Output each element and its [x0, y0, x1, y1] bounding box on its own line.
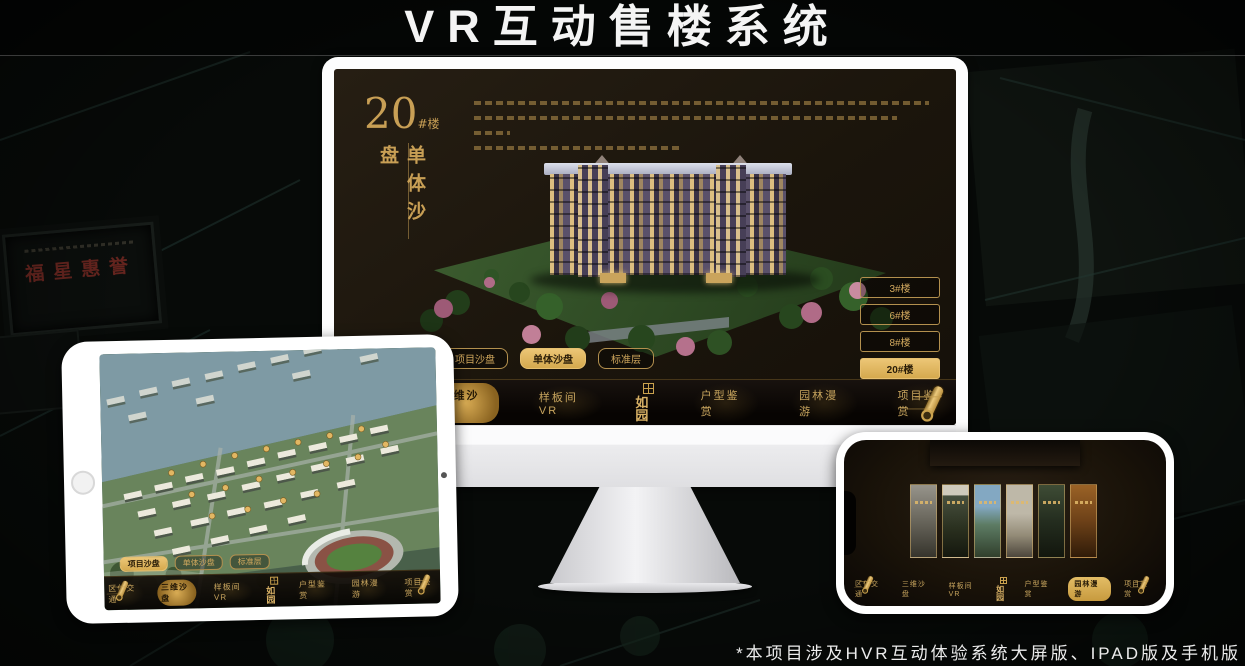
nav-item-unit-plans[interactable]: 户型鉴赏 — [1022, 578, 1059, 600]
ipad-app-screen: 项目沙盘 单体沙盘 标准层 区位交通 三维沙盘 样板间VR 如园 户型鉴赏 园林… — [99, 347, 440, 610]
tab-single-sandbox[interactable]: 单体沙盘 — [520, 348, 586, 369]
entrance-canopy — [706, 273, 732, 283]
monitor-stand — [550, 487, 740, 583]
tab-standard-floor[interactable]: 标准层 — [598, 348, 654, 369]
logo-text: 如园 — [266, 586, 282, 604]
building-tower — [578, 165, 608, 277]
seal-icon — [1000, 577, 1007, 584]
ipad-mockup: 项目沙盘 单体沙盘 标准层 区位交通 三维沙盘 样板间VR 如园 户型鉴赏 园林… — [61, 334, 459, 624]
ipad-camera — [441, 472, 447, 478]
nav-item-garden-tour[interactable]: 园林漫游 — [1068, 577, 1111, 601]
ipad-subtabs: 项目沙盘 单体沙盘 标准层 — [120, 554, 270, 572]
scene-thumb-courtyard[interactable] — [910, 484, 937, 558]
nav-item-garden-tour[interactable]: 园林漫游 — [348, 575, 388, 602]
footnote: *本项目涉及HVR互动体验系统大屏版、IPAD版及手机版 — [736, 639, 1241, 664]
nav-item-showroom-vr[interactable]: 样板间VR — [210, 579, 254, 604]
building-heading: 20#楼 单体沙盘 — [364, 93, 440, 255]
scene-thumb-study[interactable] — [1070, 484, 1097, 558]
phone-mockup: 区位交通 三维沙盘 样板间VR 如园 户型鉴赏 园林漫游 项目鉴赏 — [836, 432, 1174, 614]
stage: 福星惠誉 VR互动售楼系统 20#楼 单体沙盘 — [0, 0, 1245, 666]
nav-item-unit-plans[interactable]: 户型鉴赏 — [693, 383, 759, 423]
interior-door-beam — [930, 440, 1080, 466]
nav-item-garden-tour[interactable]: 园林漫游 — [791, 383, 857, 423]
plaque-title: 福星惠誉 — [7, 249, 155, 289]
logo-text: 如园 — [996, 586, 1011, 602]
seal-icon — [643, 383, 654, 394]
ipad-home-button — [71, 470, 95, 494]
nav-item-3d-sandbox[interactable]: 三维沙盘 — [899, 578, 936, 600]
phone-app-screen: 区位交通 三维沙盘 样板间VR 如园 户型鉴赏 园林漫游 项目鉴赏 — [844, 440, 1166, 606]
entrance-canopy — [600, 273, 626, 283]
building-number-suffix: #楼 — [417, 117, 439, 131]
phone-notch — [844, 491, 856, 555]
building-subtitle: 单体沙盘 — [374, 145, 428, 255]
nav-item-3d-sandbox[interactable]: 三维沙盘 — [157, 579, 197, 606]
heading-divider — [408, 143, 409, 239]
scene-thumb-label — [1011, 501, 1028, 504]
floor-button-3[interactable]: 3#楼 — [860, 277, 940, 298]
floor-button-8[interactable]: 8#楼 — [860, 331, 940, 352]
tab-standard-floor[interactable]: 标准层 — [230, 554, 270, 570]
ruyuan-logo: 如园 — [996, 577, 1011, 602]
tab-project-sandbox[interactable]: 项目沙盘 — [120, 556, 168, 572]
scene-thumb-label — [1075, 501, 1092, 504]
page-title: VR互动售楼系统 — [0, 0, 1245, 56]
scene-thumb-garden[interactable] — [974, 484, 1001, 558]
ruyuan-logo: 如园 — [266, 576, 282, 604]
scroll-menu-icon[interactable] — [1136, 576, 1150, 595]
logo-text: 如园 — [635, 396, 660, 422]
scroll-menu-icon[interactable] — [917, 385, 946, 422]
floor-button-group: 3#楼 6#楼 8#楼 20#楼 — [860, 277, 940, 379]
ruyuan-logo: 如园 — [635, 383, 660, 422]
scene-thumb-interior[interactable] — [942, 484, 969, 558]
scene-thumb-building[interactable] — [1006, 484, 1033, 558]
phone-navbar: 区位交通 三维沙盘 样板间VR 如园 户型鉴赏 园林漫游 项目鉴赏 — [852, 576, 1158, 602]
scroll-menu-icon[interactable] — [415, 574, 432, 595]
floor-button-6[interactable]: 6#楼 — [860, 304, 940, 325]
scroll-menu-icon[interactable] — [860, 576, 874, 595]
scene-thumb-landscape[interactable] — [1038, 484, 1065, 558]
background-plaque: 福星惠誉 — [2, 222, 162, 337]
scene-thumb-label — [1043, 501, 1060, 504]
tab-single-sandbox[interactable]: 单体沙盘 — [175, 555, 223, 571]
scene-thumb-label — [915, 501, 932, 504]
building-number-value: 20 — [364, 89, 417, 138]
description-line — [474, 116, 897, 120]
scene-gallery — [910, 484, 1097, 558]
scene-thumb-label — [947, 501, 964, 504]
sandbox-subtabs: 项目沙盘 单体沙盘 标准层 — [442, 348, 654, 369]
ipad-navbar: 区位交通 三维沙盘 样板间VR 如园 户型鉴赏 园林漫游 项目鉴赏 — [104, 569, 441, 610]
description-line — [474, 101, 929, 105]
nav-item-showroom-vr[interactable]: 样板间VR — [946, 580, 986, 599]
blossom-trees — [484, 277, 495, 288]
description-line — [474, 146, 683, 150]
nav-item-unit-plans[interactable]: 户型鉴赏 — [295, 576, 335, 603]
description-paragraph — [474, 101, 929, 161]
scroll-menu-icon[interactable] — [113, 580, 130, 601]
building-tower — [716, 165, 746, 277]
seal-icon — [270, 576, 278, 584]
building-render[interactable] — [544, 157, 800, 289]
nav-item-showroom-vr[interactable]: 样板间VR — [531, 385, 604, 421]
floor-button-20[interactable]: 20#楼 — [860, 358, 940, 379]
building-number: 20#楼 — [364, 93, 440, 135]
description-line — [474, 131, 510, 135]
scene-thumb-label — [979, 501, 996, 504]
